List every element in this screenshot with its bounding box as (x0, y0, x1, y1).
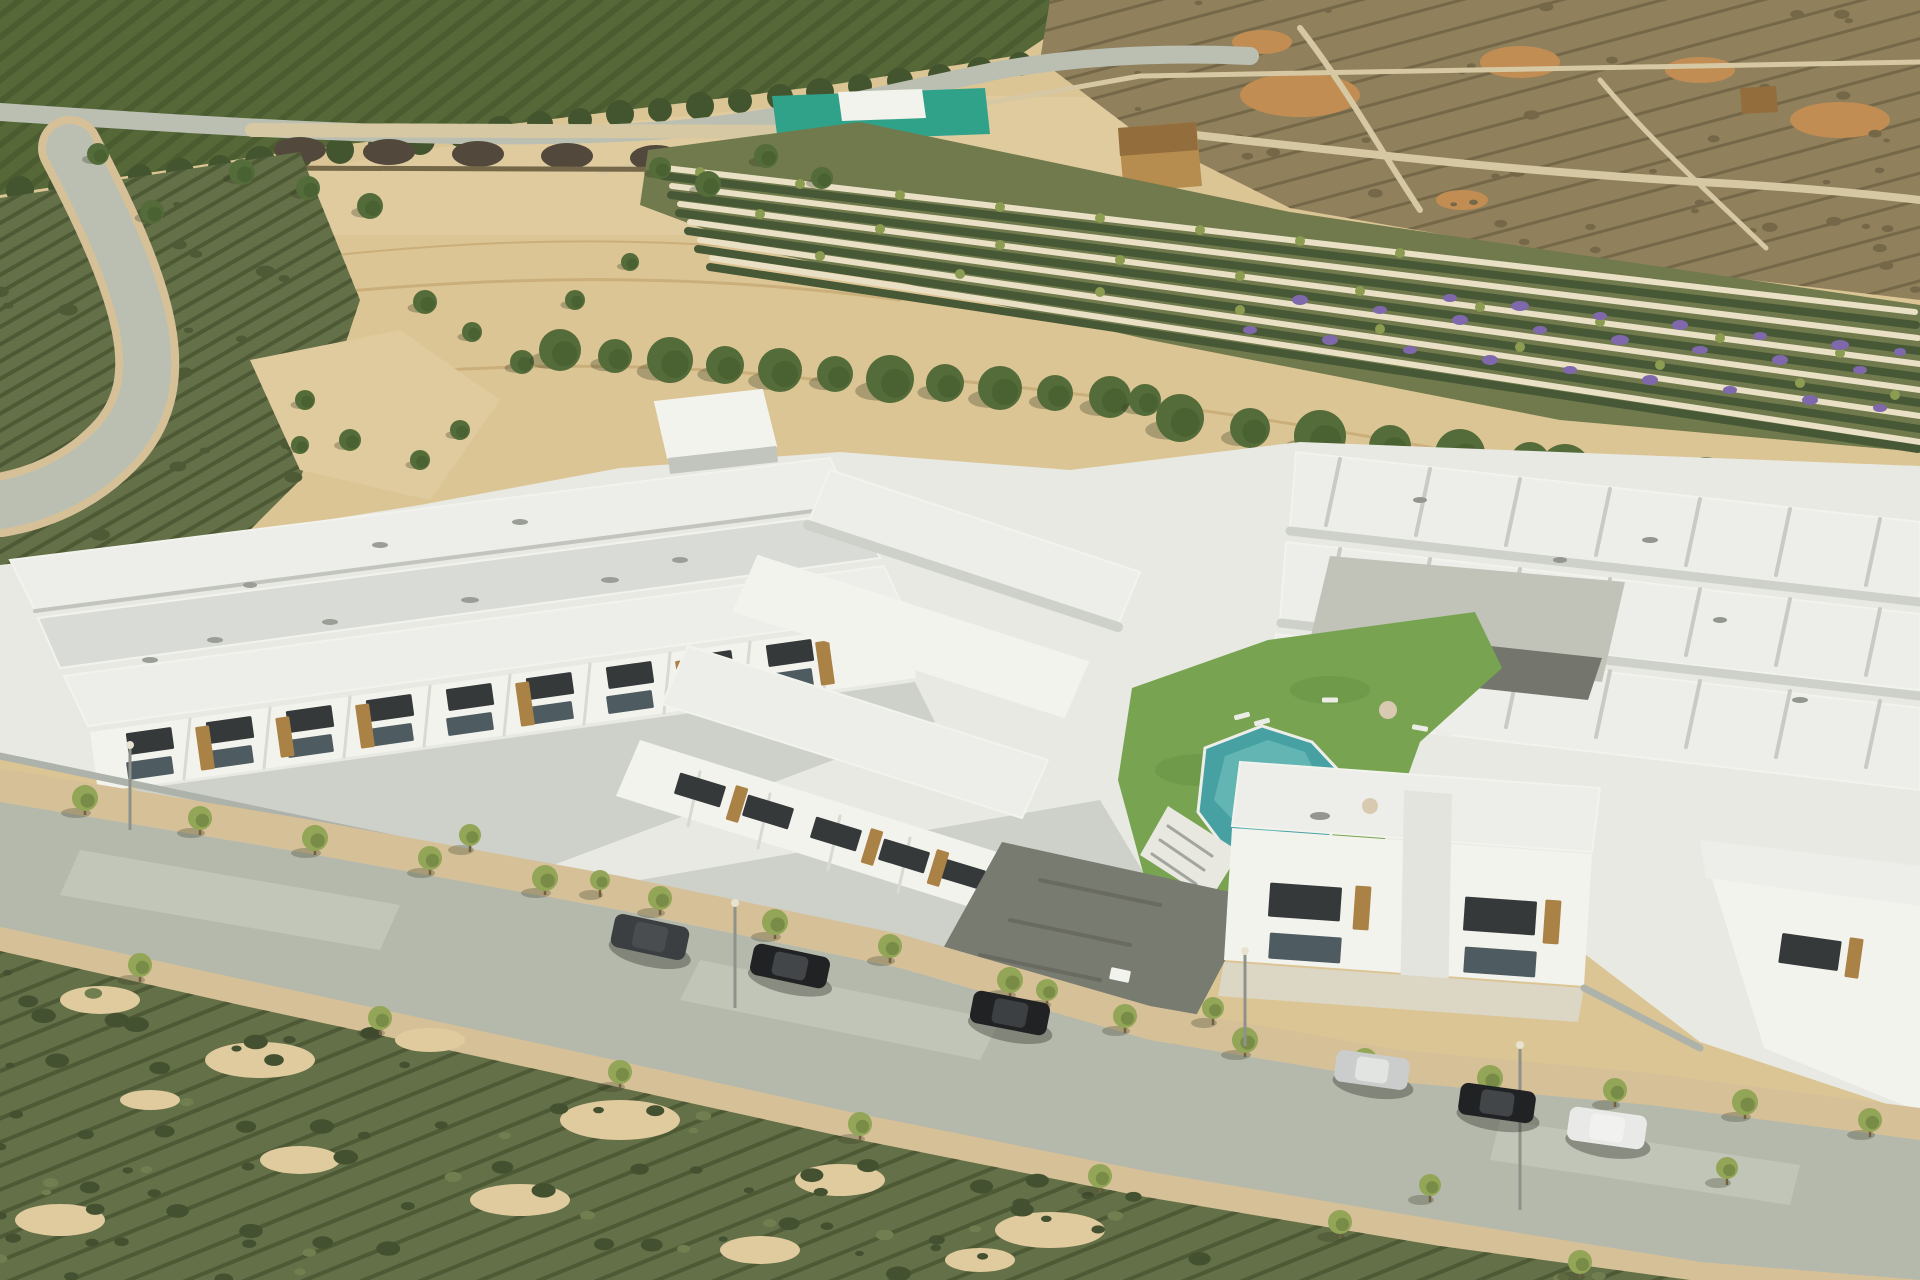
property-aerial-image (0, 0, 1920, 1280)
aerial-photo-render (0, 0, 1920, 1280)
warm-light-overlay (0, 0, 1920, 1280)
